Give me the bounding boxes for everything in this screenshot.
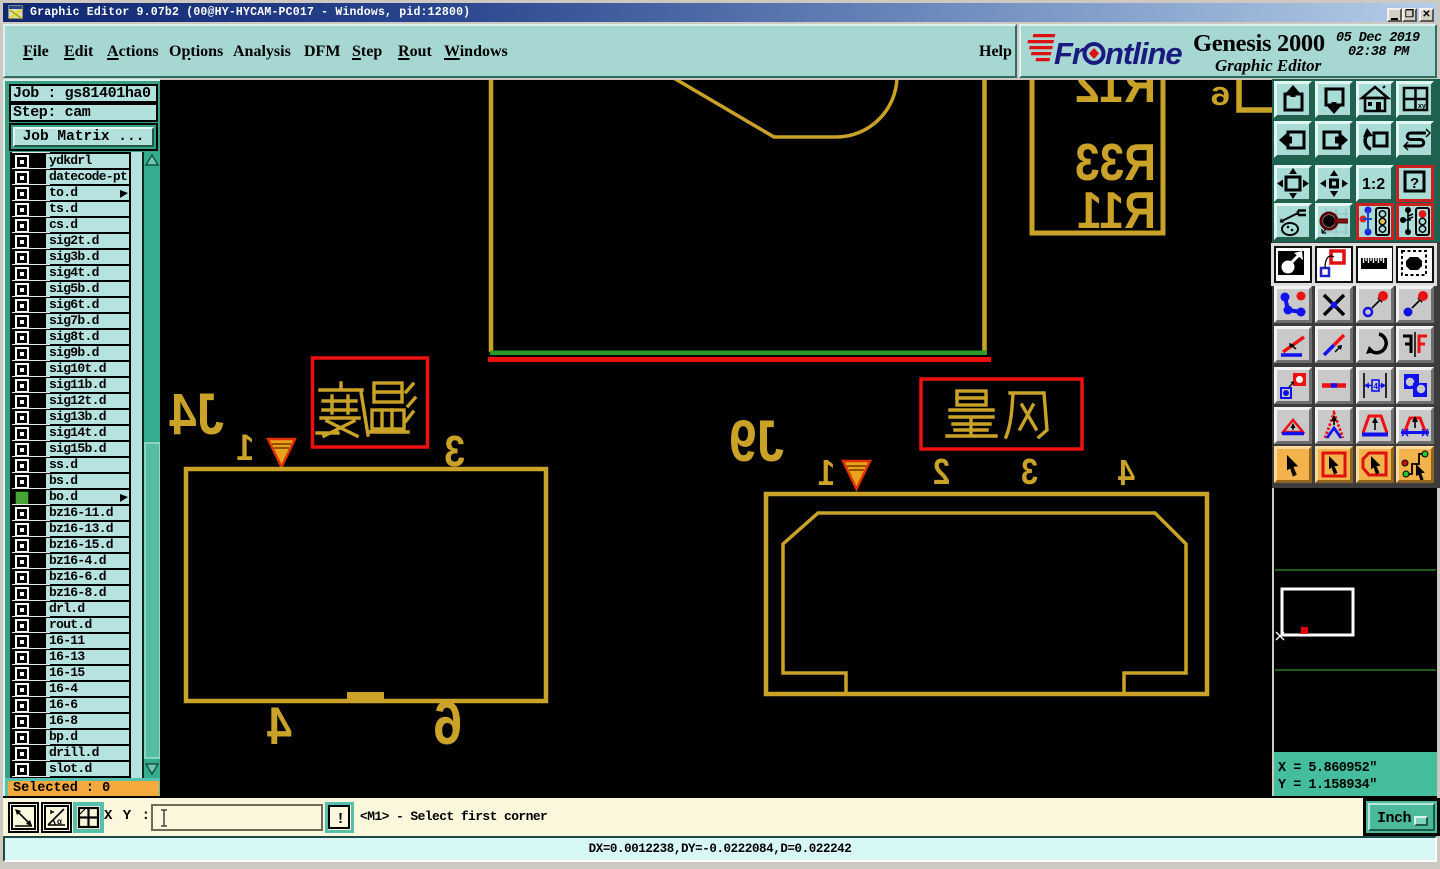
svg-text:J4: J4	[169, 382, 224, 447]
svg-text:xy: xy	[1418, 103, 1426, 110]
svg-text:ntline: ntline	[1105, 36, 1182, 71]
svg-text:3: 3	[1021, 453, 1038, 493]
svg-text:02:38 PM: 02:38 PM	[1348, 45, 1410, 60]
svg-text:Graphic Editor: Graphic Editor	[1215, 56, 1322, 75]
svg-text:Genesis 2000: Genesis 2000	[1193, 30, 1325, 57]
svg-text:4: 4	[1118, 454, 1135, 494]
svg-text:1: 1	[818, 454, 835, 494]
svg-text:α: α	[57, 817, 62, 826]
svg-text:!: !	[336, 811, 345, 828]
svg-text:4: 4	[266, 697, 292, 756]
svg-text:05 Dec 2019: 05 Dec 2019	[1336, 31, 1420, 46]
svg-text:4: 4	[1373, 382, 1378, 391]
svg-text:J9: J9	[729, 409, 784, 474]
svg-text:R12: R12	[1075, 80, 1156, 114]
svg-text:6: 6	[1210, 81, 1230, 110]
svg-text:1:2: 1:2	[1362, 176, 1385, 193]
svg-text:R11: R11	[1077, 182, 1156, 240]
svg-text:?: ?	[1410, 175, 1419, 192]
svg-text:1: 1	[237, 428, 254, 469]
svg-text:2: 2	[933, 453, 950, 493]
svg-text:Fr: Fr	[1054, 36, 1086, 71]
